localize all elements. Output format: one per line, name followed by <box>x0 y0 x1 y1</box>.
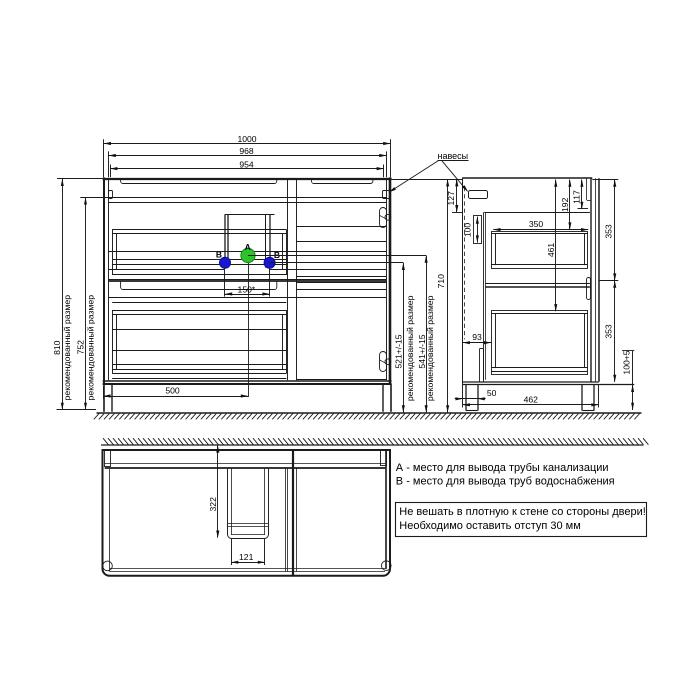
svg-text:710: 710 <box>436 274 446 289</box>
svg-text:B: B <box>216 249 222 259</box>
svg-text:462: 462 <box>524 395 539 405</box>
svg-text:521+/-15: 521+/-15 <box>394 334 404 368</box>
svg-text:322: 322 <box>208 497 218 512</box>
svg-text:A: A <box>245 242 251 252</box>
svg-text:100: 100 <box>463 223 473 238</box>
svg-text:50: 50 <box>487 388 497 398</box>
svg-text:461: 461 <box>546 243 556 258</box>
svg-text:100+5: 100+5 <box>621 350 631 374</box>
svg-text:127: 127 <box>446 191 456 206</box>
svg-text:954: 954 <box>239 159 254 169</box>
svg-text:рекомендованный размер: рекомендованный размер <box>405 295 415 401</box>
svg-text:117: 117 <box>571 190 581 204</box>
svg-text:рекомендованный размер: рекомендованный размер <box>85 295 95 401</box>
svg-text:93: 93 <box>472 332 482 342</box>
svg-text:752: 752 <box>75 340 85 355</box>
svg-text:121: 121 <box>239 552 254 562</box>
svg-text:968: 968 <box>239 146 254 156</box>
svg-text:350: 350 <box>529 219 544 229</box>
svg-text:192: 192 <box>560 197 570 212</box>
svg-text:150*: 150* <box>238 285 256 295</box>
svg-text:353: 353 <box>604 224 614 239</box>
svg-text:500: 500 <box>165 386 180 396</box>
svg-text:А - место для вывода трубы кан: А - место для вывода трубы канализации <box>396 462 609 474</box>
svg-text:навесы: навесы <box>438 151 469 161</box>
svg-text:1000: 1000 <box>237 134 256 144</box>
svg-text:рекомендованный размер: рекомендованный размер <box>425 295 435 401</box>
svg-text:рекомендованный размер: рекомендованный размер <box>62 295 72 401</box>
svg-text:Не вешать в плотную к стене со: Не вешать в плотную к стене со стороны д… <box>399 506 646 518</box>
svg-text:810: 810 <box>52 340 62 355</box>
svg-text:В - место для вывода труб водо: В - место для вывода труб водоснабжения <box>396 476 615 488</box>
svg-text:Необходимо оставить отступ 30: Необходимо оставить отступ 30 мм <box>399 520 581 532</box>
svg-text:353: 353 <box>604 324 614 339</box>
